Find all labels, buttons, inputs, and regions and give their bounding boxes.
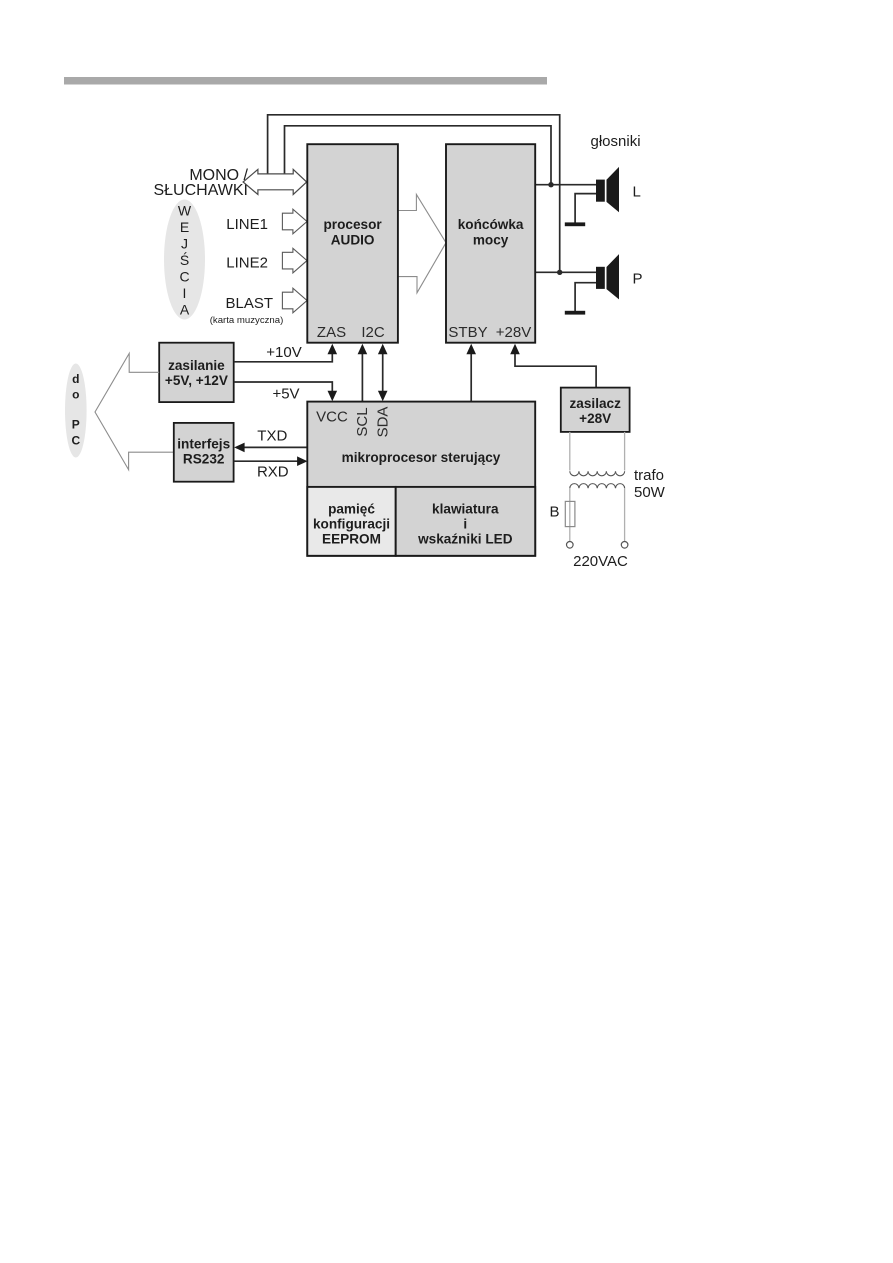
svg-text:o: o (72, 388, 79, 402)
svg-text:głosniki: głosniki (591, 133, 641, 150)
svg-text:zasilacz: zasilacz (570, 396, 622, 411)
svg-text:P: P (72, 417, 80, 431)
svg-text:BLAST: BLAST (225, 295, 273, 312)
svg-text:+5V, +12V: +5V, +12V (165, 373, 228, 388)
svg-text:P: P (633, 270, 643, 287)
svg-text:E: E (180, 219, 189, 235)
svg-text:interfejs: interfejs (177, 436, 230, 451)
svg-text:ZAS: ZAS (317, 324, 346, 341)
svg-text:wskaźniki LED: wskaźniki LED (417, 531, 513, 546)
svg-text:mikroprocesor sterujący: mikroprocesor sterujący (342, 450, 501, 465)
svg-text:(karta muzyczna): (karta muzyczna) (210, 315, 284, 326)
svg-text:RXD: RXD (257, 464, 289, 481)
svg-text:L: L (633, 183, 641, 200)
svg-text:+10V: +10V (266, 344, 301, 361)
svg-text:pamięć: pamięć (328, 501, 375, 516)
svg-text:EEPROM: EEPROM (322, 531, 381, 546)
svg-text:220VAC: 220VAC (573, 553, 628, 570)
svg-text:I2C: I2C (361, 324, 385, 341)
svg-text:I: I (183, 285, 187, 301)
svg-text:klawiatura: klawiatura (432, 501, 499, 516)
svg-text:konfiguracji: konfiguracji (313, 516, 390, 531)
svg-text:RS232: RS232 (183, 452, 225, 467)
svg-text:d: d (72, 372, 79, 386)
svg-text:W: W (178, 202, 192, 218)
svg-text:AUDIO: AUDIO (331, 232, 375, 247)
svg-text:LINE1: LINE1 (226, 216, 268, 233)
svg-text:A: A (180, 301, 190, 317)
svg-text:B: B (549, 503, 559, 520)
svg-text:procesor: procesor (324, 217, 383, 232)
svg-text:Ś: Ś (180, 251, 189, 268)
svg-text:mocy: mocy (473, 232, 509, 247)
svg-text:STBY: STBY (448, 324, 487, 341)
svg-text:C: C (179, 268, 189, 284)
svg-text:SDA: SDA (375, 407, 392, 438)
svg-text:+28V: +28V (496, 324, 531, 341)
svg-text:trafo: trafo (634, 467, 664, 484)
svg-text:50W: 50W (634, 484, 666, 501)
svg-text:C: C (71, 433, 80, 447)
svg-text:zasilanie: zasilanie (168, 358, 225, 373)
svg-text:+5V: +5V (272, 385, 299, 402)
svg-text:J: J (181, 235, 188, 251)
svg-text:+28V: +28V (579, 411, 611, 426)
svg-text:LINE2: LINE2 (226, 255, 268, 272)
svg-text:SCL: SCL (354, 407, 371, 436)
svg-text:SŁUCHAWKI: SŁUCHAWKI (153, 182, 248, 199)
svg-text:i: i (463, 516, 467, 531)
svg-text:TXD: TXD (257, 428, 287, 445)
svg-text:końcówka: końcówka (458, 217, 524, 232)
svg-text:VCC: VCC (316, 408, 348, 425)
